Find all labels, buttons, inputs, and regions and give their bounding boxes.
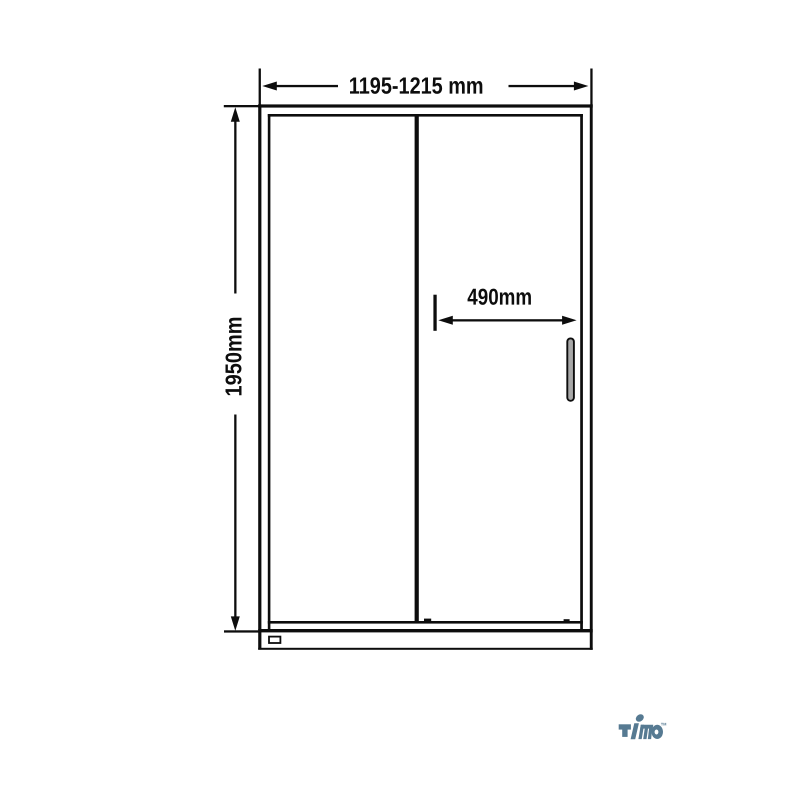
svg-text:TM: TM (661, 722, 666, 726)
svg-text:1195-1215 mm: 1195-1215 mm (349, 73, 484, 99)
svg-text:1950mm: 1950mm (221, 317, 247, 397)
svg-text:490mm: 490mm (467, 284, 532, 310)
